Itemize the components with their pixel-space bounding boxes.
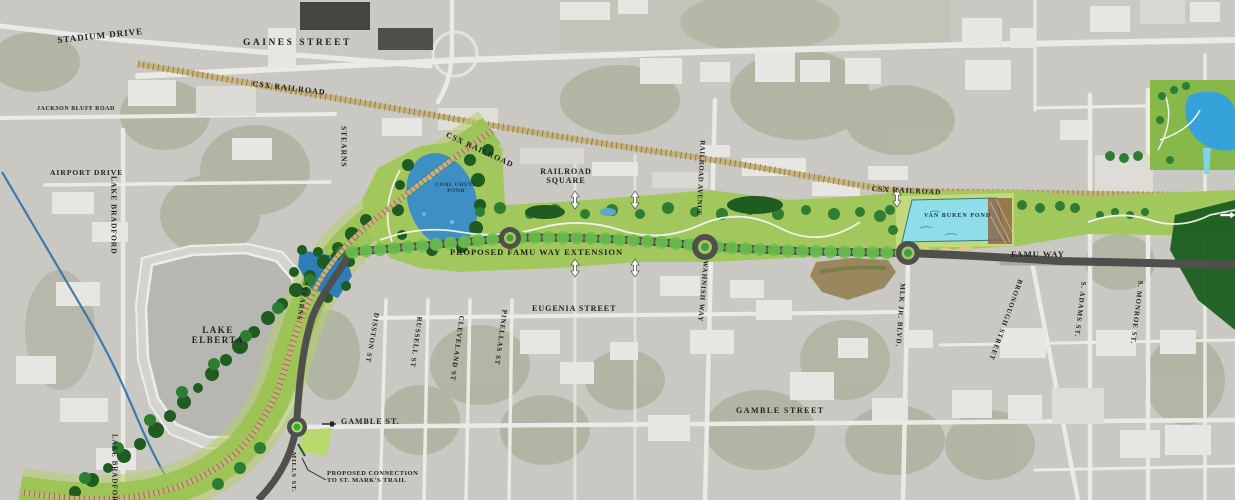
label-proposed-connection: PROPOSED CONNECTION TO ST. MARK'S TRAIL — [327, 470, 427, 484]
roundabout — [692, 234, 718, 260]
label-proposed-famu-way-extension: PROPOSED FAMU WAY EXTENSION — [450, 248, 623, 257]
label-gaines-street: GAINES STREET — [243, 38, 352, 48]
label-coal-chute-pond: COAL CHUTE POND — [434, 182, 478, 194]
label-van-buren-pond: VAN BUREN POND — [924, 213, 991, 220]
roundabout — [896, 241, 920, 265]
label-lake-elberta: LAKE ELBERTA — [186, 326, 250, 346]
label-stearns-north: STEARNS — [339, 126, 347, 168]
label-famu-way: FAMU WAY — [1011, 250, 1065, 259]
label-gamble-street: GAMBLE STREET — [736, 407, 825, 416]
label-eugenia-street: EUGENIA STREET — [532, 305, 616, 314]
site-plan-map: STADIUM DRIVE GAINES STREET CSX RAILROAD… — [0, 0, 1235, 500]
label-lake-bradford-north: LAKE BRADFORD — [109, 176, 117, 255]
label-gamble-st: GAMBLE ST. — [341, 418, 400, 427]
label-railroad-square: RAILROAD SQUARE — [538, 168, 594, 186]
label-mills-st: MILLS ST. — [290, 452, 297, 493]
roundabout — [499, 227, 521, 249]
label-jackson-bluff-road: JACKSON BLUFF ROAD — [37, 106, 115, 113]
label-lake-bradford-south: LAKE BRADFORD — [110, 434, 118, 500]
roundabout — [287, 417, 307, 437]
